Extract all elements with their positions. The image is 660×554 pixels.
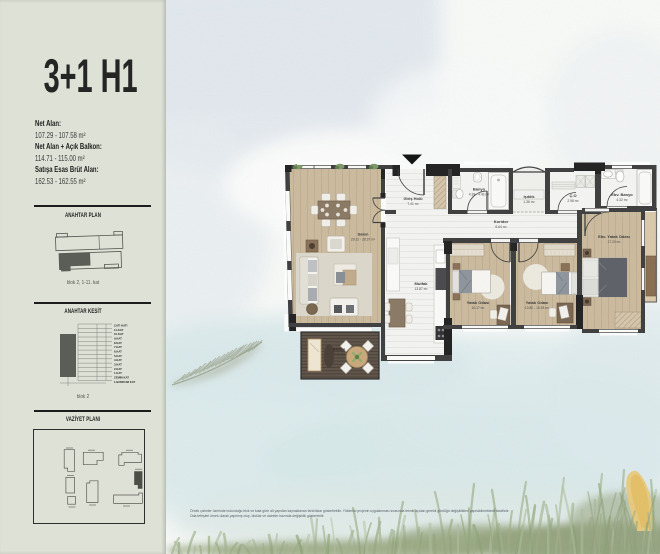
svg-text:1.BODRUM KAT: 1.BODRUM KAT [114, 380, 136, 384]
svg-text:1.KAT: 1.KAT [114, 371, 122, 375]
svg-text:7.KAT: 7.KAT [114, 345, 122, 349]
svg-text:9.KAT: 9.KAT [114, 336, 122, 340]
svg-text:ÇATI KATI: ÇATI KATI [114, 323, 128, 327]
svg-text:3.KAT: 3.KAT [114, 363, 122, 367]
svg-text:ZEMİN KAT: ZEMİN KAT [114, 375, 129, 380]
svg-text:5.KAT: 5.KAT [114, 354, 122, 358]
